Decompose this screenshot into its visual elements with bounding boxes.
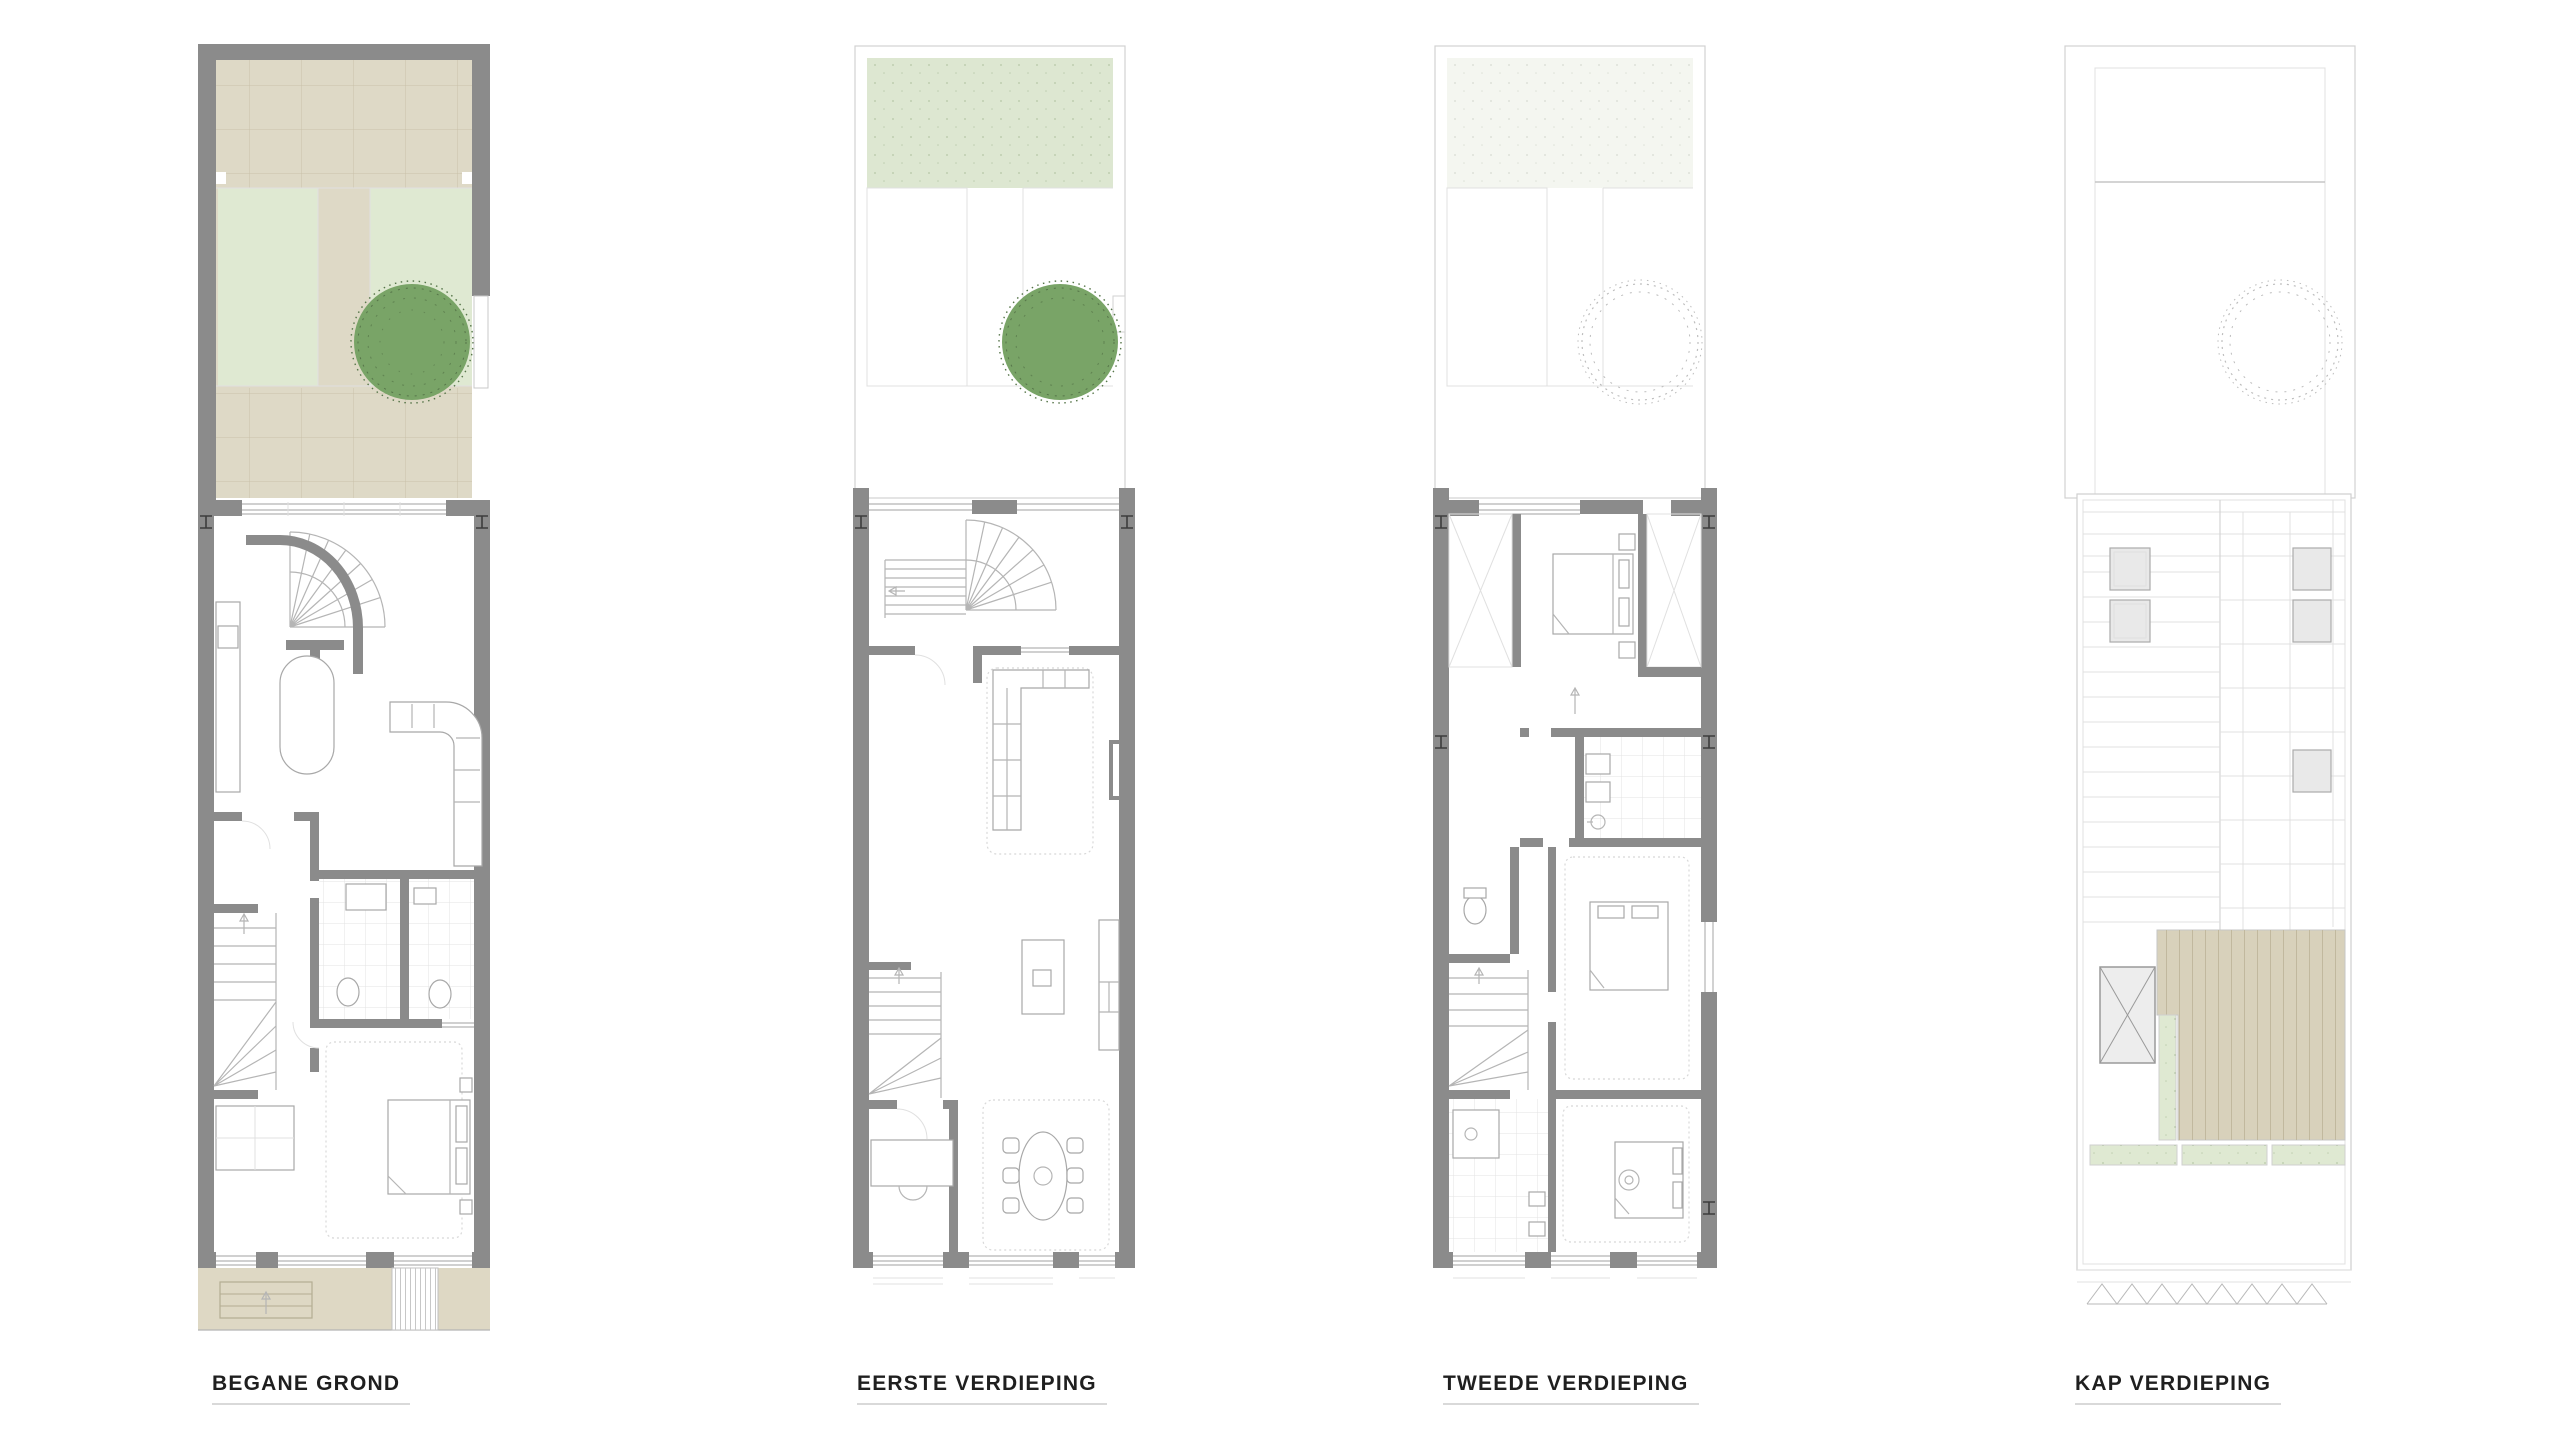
dining-table [1019,1132,1067,1220]
floor-label-kap-verdieping: KAP VERDIEPING [2075,1372,2281,1405]
spiral-stair [246,532,385,676]
stair-void [280,656,334,774]
bedroom-3 [1563,1106,1689,1242]
floor-label-begane-grond: BEGANE GROND [212,1372,410,1405]
washbasin [1529,1222,1545,1236]
plan-begane-grond [198,42,490,1342]
house [853,488,1135,1284]
nightstand [460,1078,472,1092]
floor-plan-sheet: BEGANE GROND EERSTE VERDIEPING TWEEDE VE… [0,0,2560,1440]
floor-label-eerste-verdieping: EERSTE VERDIEPING [857,1372,1107,1405]
nightstand [1619,534,1635,550]
living-room [987,668,1125,854]
lawn-left [218,188,318,386]
straight-stair [214,913,276,1090]
toilet [337,978,359,1006]
rear-facade [214,500,474,516]
spiral-stair [885,520,1056,618]
plan-kap-verdieping [2063,42,2357,1342]
street-facade [853,1252,1135,1284]
bathroom [310,870,474,1028]
toilet [429,980,451,1008]
straight-stair [1449,968,1528,1099]
street-facade [198,1252,490,1268]
desk [871,1140,953,1186]
washbasin [1586,782,1610,802]
shower-room [1449,1099,1548,1252]
bedroom-2 [1556,857,1717,1099]
interior-walls [198,812,319,1099]
street-facade [1433,1252,1717,1278]
toilet [1464,896,1486,924]
tree-outline [1578,280,1702,404]
house [1433,488,1717,1278]
rear-facade [869,500,1119,514]
washbasin [1586,754,1610,774]
master-bedroom [1449,514,1701,714]
tree [999,281,1121,403]
kitchen-counter [216,602,240,792]
corner-sofa [390,702,482,866]
tree-outline [2218,280,2342,404]
closet [216,1106,294,1170]
washbasin [414,888,436,904]
garden [198,44,490,500]
nightstand [460,1200,472,1214]
dining [983,1100,1109,1250]
nightstand [1619,642,1635,658]
bathroom [1520,728,1701,847]
plan-tweede-verdieping [1433,42,1717,1342]
floor-label-tweede-verdieping: TWEEDE VERDIEPING [1443,1372,1699,1405]
washbasin [1529,1192,1545,1206]
washbasin [346,884,386,910]
shower [1453,1110,1499,1158]
eave-detail [2077,1270,2351,1304]
sidewalk [198,1268,490,1330]
roof [2077,494,2351,1304]
garden-below-outline [1435,46,1705,498]
garden-below-outline [855,46,1125,498]
plan-eerste-verdieping [853,42,1135,1342]
garden-below-outline [2065,46,2355,498]
bedroom [326,1042,472,1238]
kitchen [1022,920,1119,1050]
desk-room [871,1100,958,1252]
house [198,500,490,1330]
